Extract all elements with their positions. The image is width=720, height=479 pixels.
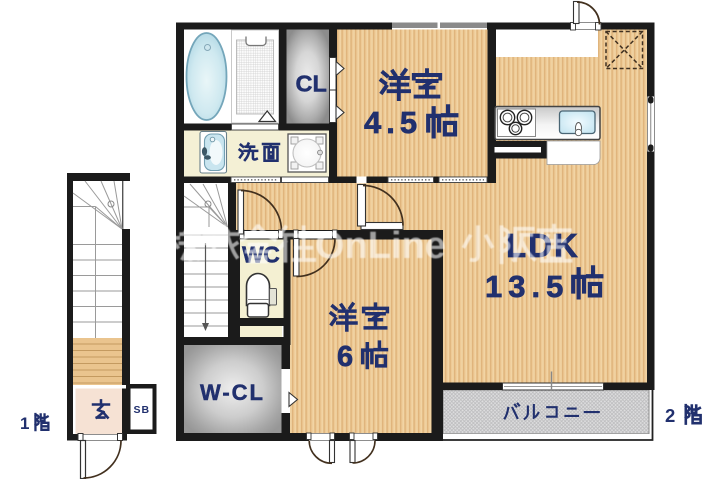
svg-text:W-CL: W-CL	[200, 380, 265, 405]
svg-text:2: 2	[665, 405, 675, 426]
svg-text:1: 1	[20, 414, 29, 433]
svg-text:SB: SB	[134, 404, 151, 416]
svg-text:4.5: 4.5	[364, 105, 422, 140]
svg-text:OnLine: OnLine	[315, 225, 446, 267]
svg-text:13.5: 13.5	[485, 269, 569, 304]
svg-text:6: 6	[337, 341, 353, 373]
svg-text:CL: CL	[296, 71, 327, 97]
